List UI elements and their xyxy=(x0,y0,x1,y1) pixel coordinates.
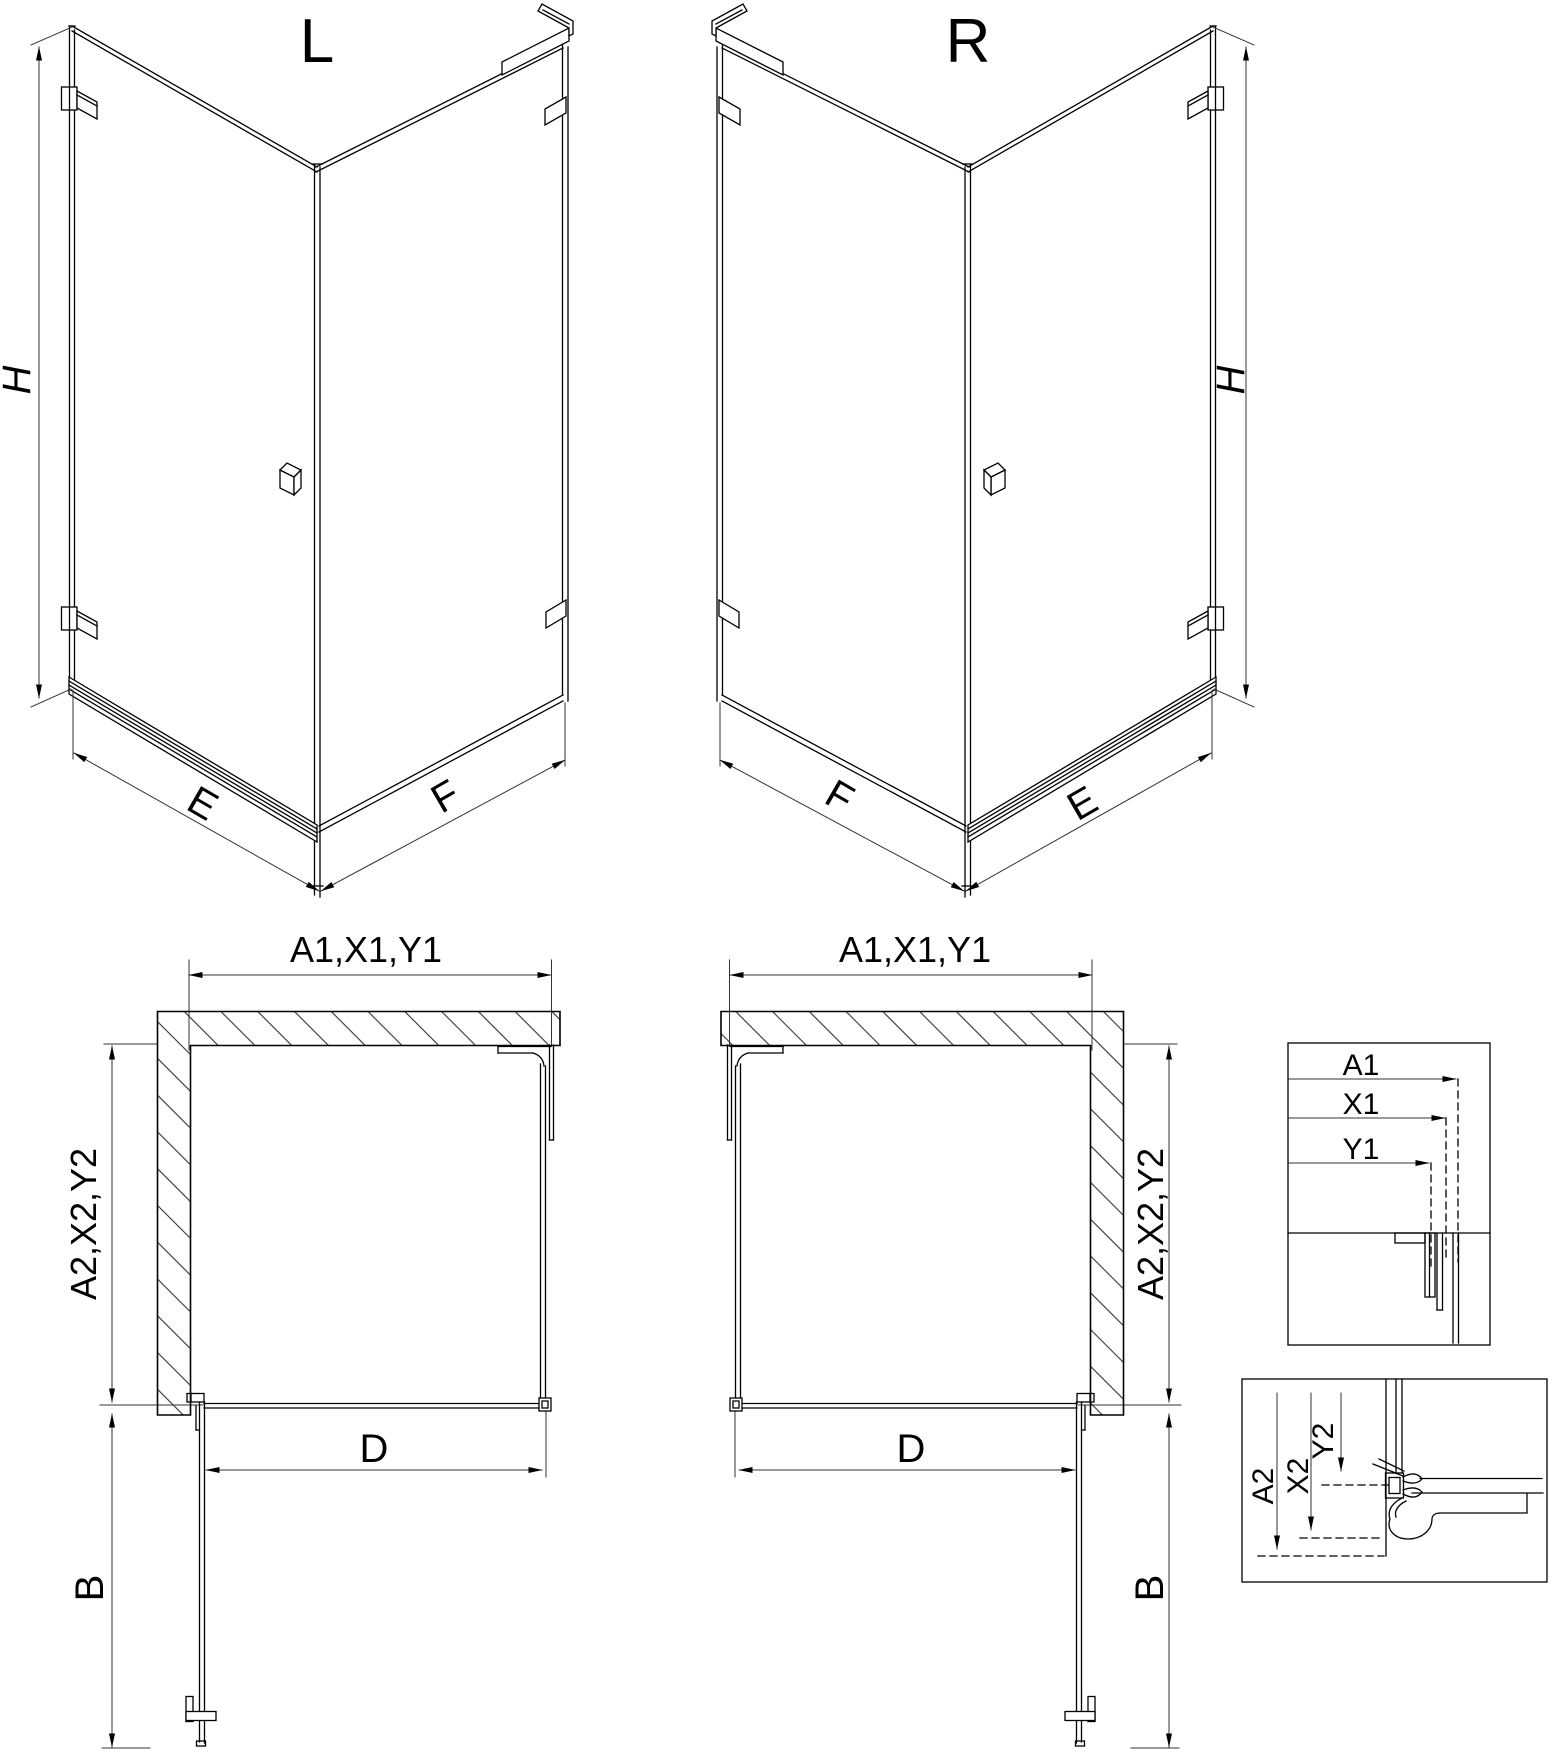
side-panel xyxy=(316,43,568,832)
shower-enclosure-technical-drawing: L R H H E F F E A1,X1,Y1 A2,X2,Y2 D B A1… xyxy=(0,0,1561,1756)
label-plan-right-door-swing: B xyxy=(1128,1575,1172,1602)
hinge-top xyxy=(62,87,98,119)
iso-view-right-geometry xyxy=(712,4,1254,897)
door-panel xyxy=(69,26,317,686)
label-height-left: H xyxy=(0,365,39,394)
labels: L R H H E F F E A1,X1,Y1 A2,X2,Y2 D B A1… xyxy=(0,7,1379,1601)
hinge-bottom xyxy=(62,607,98,639)
label-plan-right-entry: D xyxy=(897,1427,926,1471)
label-width-f-right: F xyxy=(818,772,861,822)
plan-fixed-panel xyxy=(498,1045,554,1411)
plan-left-walls xyxy=(158,1012,561,1416)
plan-right-walls xyxy=(721,1012,1124,1416)
plan-open-door xyxy=(186,1394,216,1747)
label-variant-right: R xyxy=(946,7,991,76)
label-plan-right-width: A1,X1,Y1 xyxy=(839,929,991,970)
drawing-stage: L R H H E F F E A1,X1,Y1 A2,X2,Y2 D B A1… xyxy=(0,0,1561,1756)
label-width-e-right: E xyxy=(1060,778,1105,829)
label-detail-a2: A2 xyxy=(1247,1468,1280,1505)
label-variant-left: L xyxy=(300,7,334,76)
label-detail-y2: Y2 xyxy=(1307,1423,1340,1460)
label-plan-left-entry: D xyxy=(360,1427,389,1471)
label-plan-left-depth: A2,X2,Y2 xyxy=(63,1148,104,1300)
label-detail-y1: Y1 xyxy=(1343,1133,1380,1166)
wall-profile-section xyxy=(1288,1233,1490,1343)
tray-profile-section xyxy=(1373,1379,1543,1556)
label-detail-a1: A1 xyxy=(1343,1049,1380,1082)
iso-view-left-geometry xyxy=(31,4,573,897)
label-detail-x1: X1 xyxy=(1343,1088,1380,1121)
label-width-e-left: E xyxy=(180,778,225,829)
label-plan-left-width: A1,X1,Y1 xyxy=(290,929,442,970)
label-plan-right-depth: A2,X2,Y2 xyxy=(1130,1148,1171,1300)
label-width-f-left: F xyxy=(424,772,467,822)
label-detail-x2: X2 xyxy=(1282,1458,1315,1495)
label-height-right: H xyxy=(1209,365,1253,394)
label-plan-left-door-swing: B xyxy=(68,1575,112,1602)
corner-post xyxy=(313,164,323,897)
door-handle xyxy=(280,463,301,495)
plan-tray-edge xyxy=(204,1404,539,1409)
detail-inset-width xyxy=(1288,1043,1490,1345)
